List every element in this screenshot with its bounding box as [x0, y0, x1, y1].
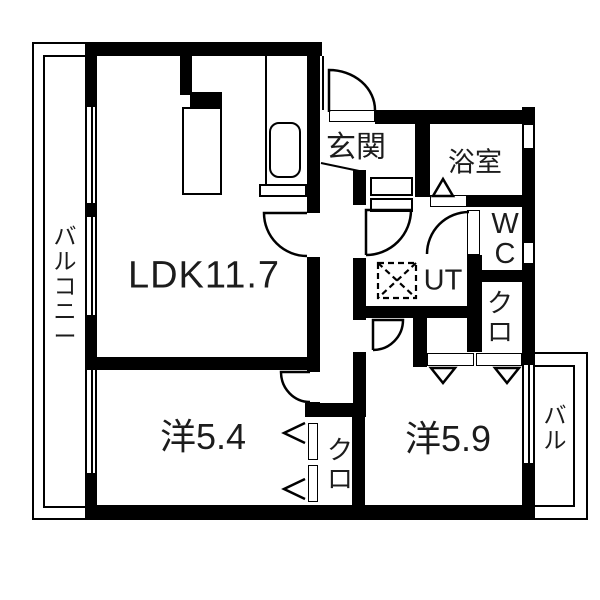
door-arc-utility	[366, 210, 411, 255]
room-label-closet-right: クロ	[487, 289, 513, 347]
floor-plan: LDK11.7 洋5.4 洋5.9 玄関 浴室 WC UT クロ クロ バルコニ…	[0, 0, 600, 600]
room-label-ldk: LDK11.7	[128, 255, 280, 298]
room-label-western1: 洋5.4	[160, 408, 246, 460]
room-label-western2: 洋5.9	[405, 410, 491, 462]
door-arc-ldk	[264, 213, 307, 256]
closet-arrow-1	[284, 423, 305, 443]
room-label-utility: UT	[424, 265, 463, 298]
bathroom-door-triangle	[433, 179, 453, 196]
door-arc-bedroom1	[281, 372, 310, 402]
folding-door-triangle-1	[431, 368, 455, 383]
room-label-wc: WC	[491, 209, 518, 269]
door-arc-entrance	[329, 70, 375, 112]
room-label-entrance: 玄関	[326, 122, 386, 166]
closet-arrow-2	[284, 479, 305, 499]
door-arc-wc	[427, 212, 469, 254]
door-arc-bedroom2	[373, 320, 403, 350]
room-label-closet-left: クロ	[327, 436, 353, 494]
room-label-balcony-sub: バル	[544, 403, 567, 453]
washing-machine-icon	[378, 263, 416, 298]
room-label-bathroom: 浴室	[448, 141, 502, 180]
room-label-balcony-main: バルコニー	[54, 224, 77, 349]
folding-door-triangle-2	[495, 368, 519, 383]
